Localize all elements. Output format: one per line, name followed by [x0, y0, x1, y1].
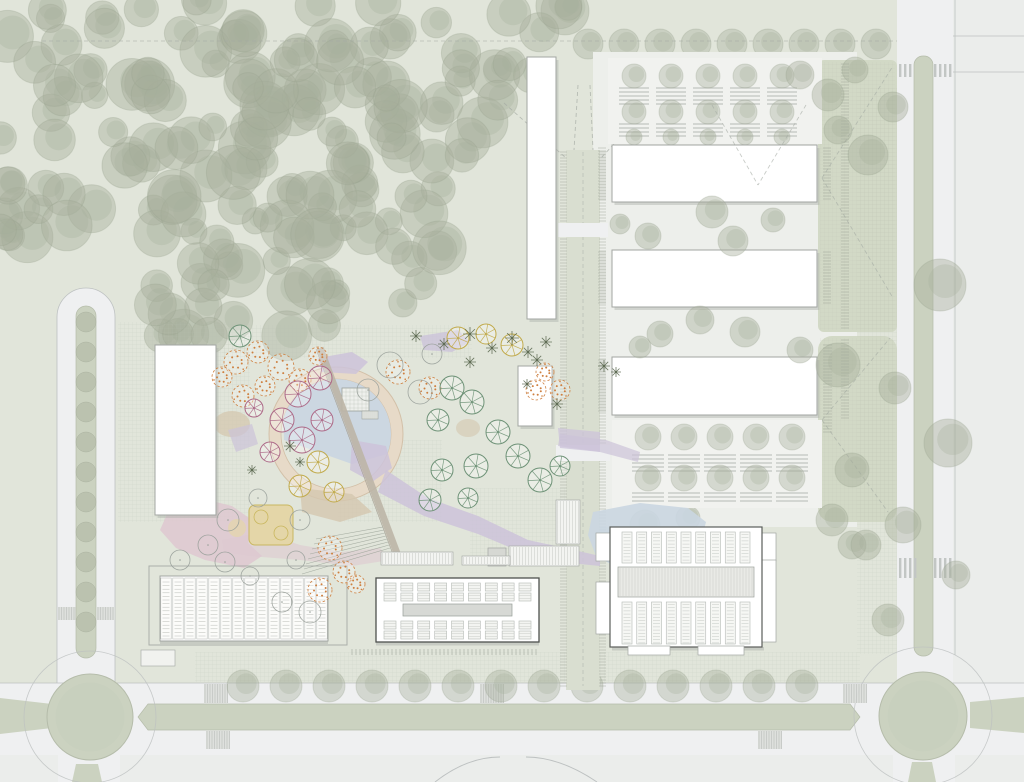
roadside-tree [851, 530, 881, 560]
palm-shrub [284, 440, 296, 452]
kiosk-row [509, 546, 579, 566]
workshop-louvre-roof [160, 576, 328, 644]
median-southwest [0, 698, 52, 734]
roadside-tree [879, 372, 911, 404]
court-pad [228, 519, 246, 537]
office-slab-west [155, 345, 219, 518]
kiosk-tall [556, 500, 580, 544]
palm-shrub [611, 367, 621, 377]
green-tree [427, 409, 449, 431]
roundabout-east-island [879, 672, 967, 760]
roadside-tree [924, 419, 972, 467]
green-tree [458, 488, 478, 508]
green-tree [528, 468, 552, 492]
pink-tree [308, 366, 332, 390]
palm-shrub [522, 379, 532, 389]
orange-tree [247, 341, 269, 363]
orange-tree [386, 360, 410, 384]
palm-shrub [438, 338, 450, 350]
palm-shrub [531, 354, 543, 366]
median-fareast [970, 697, 1024, 733]
site-plan-drawing [0, 0, 1024, 782]
orange-tree [308, 578, 332, 602]
courtyard-tree [761, 208, 785, 232]
green-tree [431, 459, 453, 481]
gym-wing-ne [761, 533, 776, 561]
tower-slab-north [527, 57, 559, 322]
ground-tan-2 [456, 419, 480, 437]
palm-shrub [464, 356, 476, 368]
orange-tree [255, 376, 275, 396]
palm-shrub [295, 457, 305, 467]
orange-tree [536, 363, 554, 381]
roadside-tree [878, 92, 908, 122]
orange-tree [318, 536, 342, 560]
gym-tab-1 [628, 646, 670, 655]
roadside-tree [872, 604, 904, 636]
campus-tree [824, 116, 852, 144]
crosswalk-south-4 [206, 731, 230, 749]
green-tree [550, 456, 570, 476]
courtyard-tree [610, 214, 630, 234]
crosswalk-south-3 [843, 684, 867, 703]
roadside-tree [835, 453, 869, 487]
roadside-tree [914, 259, 966, 311]
green-tree [506, 444, 530, 468]
crosswalk-south-5 [758, 731, 782, 749]
median-south [138, 704, 860, 730]
pink-tree [285, 381, 311, 407]
courtyard-tree [629, 336, 651, 358]
gym-ribbed-roof [610, 527, 764, 651]
orange-tree [212, 367, 232, 387]
gym-wing-se [761, 560, 776, 642]
ground-outside-east [953, 0, 1024, 782]
green-tree [419, 489, 441, 511]
orange-tree [309, 347, 327, 365]
hall-skylight-roof [376, 578, 539, 646]
palm-shrub [463, 327, 477, 341]
yellow-tree [307, 451, 329, 473]
residential-slab-2 [612, 250, 820, 310]
roadside-tree [816, 343, 860, 387]
courtyard-tree [647, 321, 673, 347]
yellow-tree [476, 324, 496, 344]
palm-shrub [598, 360, 610, 372]
orange-tree [550, 380, 570, 400]
orange-tree [347, 575, 365, 593]
gym-wing-nw [596, 533, 611, 561]
pink-tree [245, 399, 263, 417]
yellow-tree [289, 475, 311, 497]
ground-south [0, 755, 1024, 782]
palm-shrub [247, 465, 257, 475]
green-tree [229, 325, 251, 347]
residential-slab-3 [612, 357, 820, 418]
pink-tree [311, 409, 333, 431]
site-plan-page [0, 0, 1024, 782]
median-east [914, 56, 933, 656]
courtyard-tree [730, 317, 760, 347]
palm-shrub [540, 336, 552, 348]
campus-tree [812, 79, 844, 111]
yellow-tree [324, 482, 344, 502]
courtyard-tree [787, 337, 813, 363]
roadside-tree [942, 561, 970, 589]
courtyard-tree [686, 306, 714, 334]
crosswalk-west-a [58, 607, 76, 620]
gym-tab-2 [698, 646, 744, 655]
green-tree [460, 390, 484, 414]
roundabout-west-island [47, 674, 133, 760]
platform-steps [141, 650, 175, 666]
palm-shrub [522, 346, 534, 358]
median-south-exit-east [908, 762, 936, 782]
green-tree [486, 420, 510, 444]
palm-shrub [505, 331, 519, 345]
service-strip-1 [381, 552, 453, 565]
campus-tree [786, 61, 814, 89]
palm-shrub [551, 398, 563, 410]
sports-court [249, 505, 293, 545]
crosswalk-west-b [97, 607, 115, 620]
courtyard-tree [696, 196, 728, 228]
courtyard-tree [635, 223, 661, 249]
pink-tree [260, 442, 280, 462]
service-strip-2 [462, 556, 510, 565]
roadside-tree [885, 507, 921, 543]
pink-tree [270, 408, 294, 432]
palm-shrub [486, 342, 498, 354]
green-tree [464, 454, 488, 478]
roadside-tree [848, 135, 888, 175]
median-south-exit-west [72, 764, 102, 782]
crosswalk-south-1 [204, 684, 228, 703]
campus-tree [816, 504, 848, 536]
campus-tree [842, 57, 868, 83]
courtyard-tree [718, 226, 748, 256]
spine-crossing-1 [558, 223, 608, 237]
palm-shrub [410, 330, 422, 342]
green-tree [440, 376, 464, 400]
gym-wing-sw [596, 582, 611, 634]
orange-tree [526, 380, 546, 400]
